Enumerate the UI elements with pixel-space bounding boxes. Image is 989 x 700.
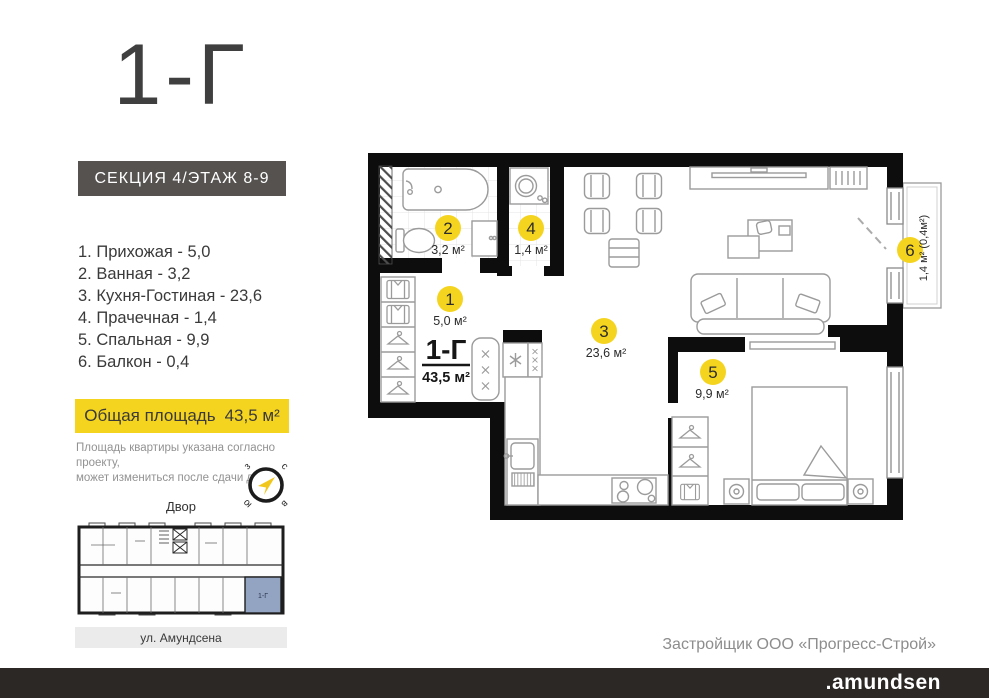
developer-credit: Застройщик ООО «Прогресс-Строй» xyxy=(662,636,936,654)
brand-logo: .amundsen xyxy=(826,668,941,698)
room-list-item: 4. Прачечная - 1,4 xyxy=(78,307,262,329)
shoe-rack-icon xyxy=(830,167,867,189)
svg-text:2: 2 xyxy=(443,219,452,238)
yard-label: Двор xyxy=(75,499,287,514)
room-marker: 1 5,0 м² xyxy=(433,286,467,328)
room-marker: 5 9,9 м² xyxy=(695,359,729,401)
room-list-item: 6. Балкон - 0,4 xyxy=(78,351,262,373)
shaft-hatch xyxy=(379,166,392,264)
svg-text:9,9 м²: 9,9 м² xyxy=(695,387,729,401)
washing-machine-icon xyxy=(510,168,548,204)
stove-icon xyxy=(612,478,656,503)
dining-set-icon xyxy=(585,174,662,268)
apartment-plan-label: 1-Г 43,5 м² xyxy=(422,334,470,386)
bedroom-wardrobe-icon xyxy=(672,417,708,505)
svg-text:3: 3 xyxy=(599,322,608,341)
svg-text:1,4 м²: 1,4 м² xyxy=(514,243,548,257)
kitchen-icons xyxy=(503,343,668,505)
svg-text:1,4 м² (0,4м²): 1,4 м² (0,4м²) xyxy=(918,215,930,281)
building-mini-plan: 1-Г xyxy=(75,515,287,623)
entry-door-panel xyxy=(472,338,499,400)
svg-text:6: 6 xyxy=(905,241,914,260)
desk-icon xyxy=(728,220,792,258)
total-area-badge: Общая площадь 43,5 м² xyxy=(75,399,289,433)
room-list: 1. Прихожая - 5,0 2. Ванная - 3,2 3. Кух… xyxy=(78,241,262,373)
total-area-value: 43,5 м² xyxy=(225,406,280,426)
flat-card: 1-Г СЕКЦИЯ 4/ЭТАЖ 8-9 1. Прихожая - 5,0 … xyxy=(0,0,989,700)
bath-cabinet-icon xyxy=(472,221,497,256)
apartment-title: 1-Г xyxy=(75,30,287,120)
bathtub-icon xyxy=(403,169,488,210)
tv-console-icon xyxy=(690,167,828,189)
total-area-label: Общая площадь xyxy=(84,406,215,426)
brand-bar: .amundsen xyxy=(0,668,989,698)
svg-text:1: 1 xyxy=(445,290,454,309)
room-list-item: 2. Ванная - 3,2 xyxy=(78,263,262,285)
svg-text:23,6 м²: 23,6 м² xyxy=(586,346,627,360)
svg-text:1-Г: 1-Г xyxy=(426,334,467,365)
highlighted-unit-label: 1-Г xyxy=(258,593,268,600)
hall-wardrobe-icon xyxy=(381,277,415,402)
balcony-door-swing xyxy=(858,218,886,249)
bedroom-tv-icon xyxy=(750,342,835,349)
svg-text:3,2 м²: 3,2 м² xyxy=(431,243,465,257)
svg-text:4: 4 xyxy=(526,219,535,238)
nightstand-icon xyxy=(724,479,749,504)
room-list-item: 1. Прихожая - 5,0 xyxy=(78,241,262,263)
toilet-icon xyxy=(396,229,435,253)
room-list-item: 3. Кухня-Гостиная - 23,6 xyxy=(78,285,262,307)
sofa-icon xyxy=(691,274,830,334)
bed-icon xyxy=(752,387,847,505)
nightstand-icon xyxy=(848,479,873,504)
street-label: ул. Амундсена xyxy=(75,627,287,648)
svg-text:43,5 м²: 43,5 м² xyxy=(422,370,470,386)
svg-text:5,0 м²: 5,0 м² xyxy=(433,314,467,328)
room-list-item: 5. Спальная - 9,9 xyxy=(78,329,262,351)
section-floor-badge: СЕКЦИЯ 4/ЭТАЖ 8-9 xyxy=(78,161,286,196)
floor-plan: 1-Г 43,5 м² 1 5,0 м² 2 3,2 м² 3 23,6 м² xyxy=(360,148,948,528)
svg-text:5: 5 xyxy=(708,363,717,382)
room-marker: 3 23,6 м² xyxy=(586,318,627,360)
